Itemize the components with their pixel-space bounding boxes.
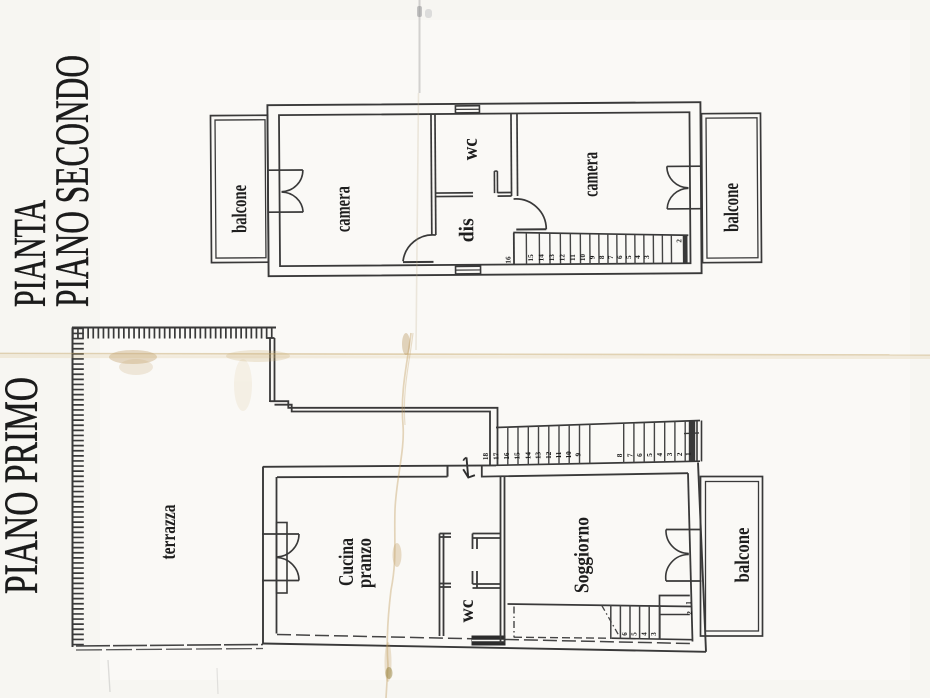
svg-text:8: 8 (598, 255, 606, 259)
svg-text:2: 2 (685, 611, 694, 615)
svg-text:15: 15 (514, 452, 522, 460)
svg-text:12: 12 (558, 254, 566, 262)
svg-text:1: 1 (685, 452, 693, 456)
svg-text:camera: camera (330, 186, 354, 233)
svg-text:10: 10 (579, 253, 587, 261)
svg-text:9: 9 (588, 255, 596, 259)
svg-text:3: 3 (650, 632, 658, 636)
svg-text:5: 5 (646, 453, 654, 457)
svg-text:3: 3 (643, 255, 651, 259)
svg-text:17: 17 (493, 452, 501, 460)
svg-text:4: 4 (634, 255, 642, 259)
svg-text:7: 7 (626, 453, 634, 457)
svg-text:18: 18 (482, 453, 490, 461)
svg-text:13: 13 (535, 451, 543, 459)
svg-text:4: 4 (641, 632, 649, 636)
svg-text:9: 9 (575, 452, 583, 456)
svg-text:11: 11 (555, 451, 563, 458)
svg-text:2: 2 (676, 452, 684, 456)
svg-text:dis: dis (454, 218, 478, 242)
svg-text:11: 11 (569, 254, 577, 261)
svg-text:PIANO SECONDO: PIANO SECONDO (46, 55, 99, 307)
svg-text:balcone: balcone (719, 183, 743, 232)
svg-text:balcone: balcone (227, 185, 251, 233)
svg-text:12: 12 (545, 451, 553, 459)
svg-text:wc: wc (454, 600, 478, 623)
svg-text:5: 5 (631, 632, 639, 636)
svg-text:10: 10 (565, 451, 573, 459)
svg-text:16: 16 (503, 452, 511, 460)
svg-text:7: 7 (607, 255, 615, 259)
svg-text:terrazza: terrazza (156, 504, 180, 559)
svg-text:6: 6 (616, 255, 624, 259)
svg-text:13: 13 (548, 254, 556, 262)
svg-text:6: 6 (621, 632, 629, 636)
svg-text:14: 14 (524, 452, 532, 460)
svg-text:4: 4 (656, 452, 664, 456)
svg-text:balcone: balcone (730, 528, 754, 583)
svg-text:1: 1 (685, 601, 693, 605)
svg-text:6: 6 (636, 453, 644, 457)
svg-text:16: 16 (504, 256, 512, 264)
svg-text:2: 2 (675, 239, 683, 243)
svg-text:3: 3 (666, 452, 674, 456)
svg-text:15: 15 (527, 254, 535, 262)
svg-text:PIANO PRIMO: PIANO PRIMO (0, 377, 48, 594)
svg-text:14: 14 (537, 254, 545, 262)
svg-text:camera: camera (578, 152, 602, 197)
svg-text:8: 8 (616, 453, 624, 457)
svg-text:pranzo: pranzo (352, 538, 376, 588)
svg-text:5: 5 (625, 255, 633, 259)
svg-text:wc: wc (458, 138, 482, 160)
svg-text:Soggiorno: Soggiorno (570, 517, 594, 593)
